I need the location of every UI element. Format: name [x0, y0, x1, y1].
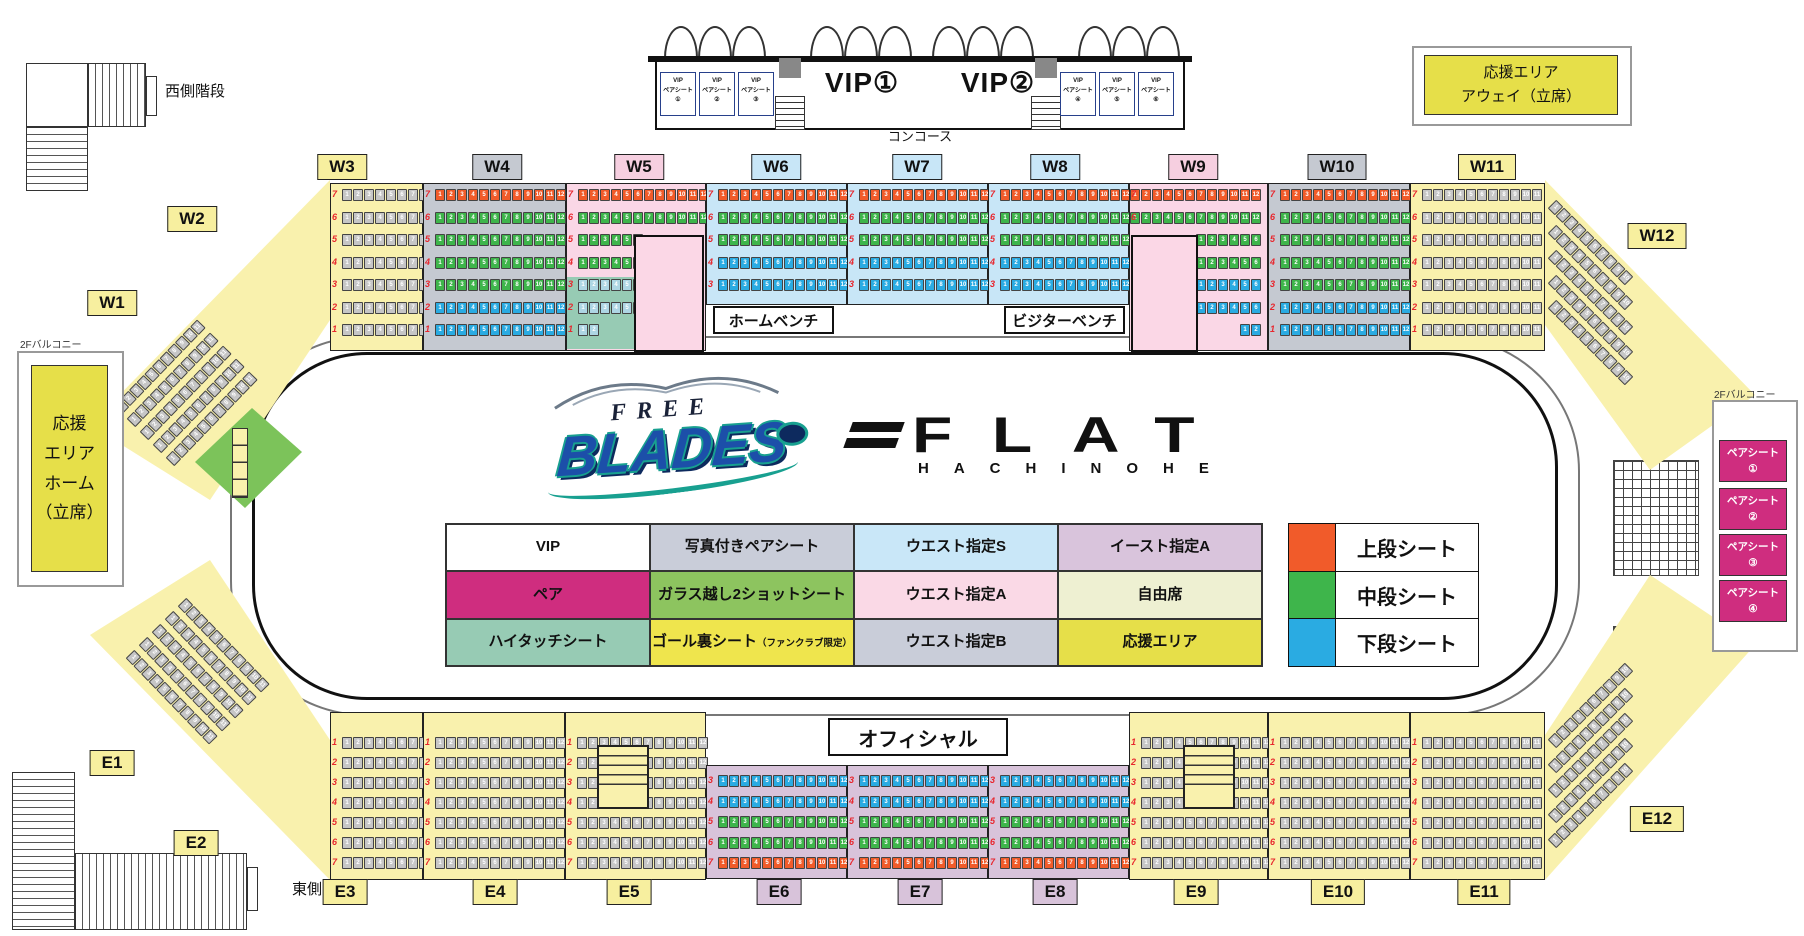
seat: 4	[1313, 212, 1323, 224]
section-W9[interactable]: 7123456789101112612345678910111251234564…	[1129, 183, 1268, 351]
row-number: 2	[1270, 302, 1275, 312]
west-stairs-steps-lower	[26, 127, 88, 191]
seat: 2	[870, 257, 880, 269]
seat: 6	[1335, 817, 1345, 829]
seat: 6	[914, 234, 924, 246]
seat: 9	[1088, 796, 1098, 808]
seat: 6	[1335, 777, 1345, 789]
seat: 6	[914, 837, 924, 849]
seat: 5	[1185, 837, 1195, 849]
seat: 5	[479, 737, 489, 749]
seat: 8	[1499, 189, 1509, 201]
seat: 5	[479, 279, 489, 291]
seat: 9	[1510, 257, 1520, 269]
seat: 1	[1422, 777, 1432, 789]
section-W5[interactable]: 7123456789101112612345678910111251234564…	[566, 183, 706, 351]
seat: 1	[1000, 212, 1010, 224]
section-badge-E3[interactable]: E3	[323, 879, 368, 905]
seat-row: 3123456789101112	[707, 279, 846, 291]
seat-row: 4123456789101112	[424, 257, 565, 269]
seat: 6	[914, 857, 924, 869]
seat: 11	[1390, 302, 1400, 314]
seat-row: 7123456789101112	[567, 189, 705, 201]
seat: 7	[408, 302, 418, 314]
seat: 1	[1000, 189, 1010, 201]
seat: 7	[408, 737, 418, 749]
seat: 9	[1088, 775, 1098, 787]
section-E4[interactable]: 1123456789101112212345678910111231234567…	[423, 712, 565, 880]
seat-row: 4123456789101112	[707, 257, 846, 269]
seat: 2	[729, 857, 739, 869]
seat: 9	[806, 775, 816, 787]
row-number: 4	[1412, 257, 1417, 267]
section-E11[interactable]: 1123456789101121234567891011312345678910…	[1410, 712, 1545, 880]
seat: 8	[936, 837, 946, 849]
seat: 11	[1110, 816, 1120, 828]
seat: 4	[1455, 234, 1465, 246]
section-badge-E4[interactable]: E4	[473, 879, 518, 905]
legend-cell-label: ゴール裏シート（ファンクラブ限定）	[652, 634, 852, 651]
vip-booth-label: VIP	[739, 77, 773, 87]
row-number: 2	[1131, 757, 1136, 767]
legend-cell-label: 応援エリア	[1122, 634, 1197, 651]
seat: 9	[1510, 797, 1520, 809]
seat: 9	[1368, 324, 1378, 336]
pair-seat-label: ペアシート	[1720, 540, 1786, 556]
seat: 9	[1368, 279, 1378, 291]
seat: 11	[828, 857, 838, 869]
seat: 3	[1302, 257, 1312, 269]
seat: 4	[1313, 737, 1323, 749]
seat: 9	[1368, 817, 1378, 829]
seat: 10	[534, 857, 544, 869]
seat: 5	[1324, 324, 1334, 336]
seat: 10	[817, 857, 827, 869]
seat: 1	[435, 279, 445, 291]
seat: 10	[1240, 817, 1250, 829]
row-number: 3	[1270, 777, 1275, 787]
section-badge-W12[interactable]: W12	[1628, 223, 1687, 249]
section-W10[interactable]: 7123456789101112612345678910111251234567…	[1268, 183, 1410, 351]
seat: 3	[364, 817, 374, 829]
away-standing-area[interactable]: 応援エリア アウェイ（立席）	[1424, 55, 1618, 115]
seat-row: 2123456789101112	[424, 757, 564, 769]
row-number: 5	[425, 234, 430, 244]
seat: 1	[1280, 737, 1290, 749]
tier-label: 下段シート	[1336, 619, 1478, 666]
seat: 7	[501, 757, 511, 769]
seat: 7	[784, 857, 794, 869]
seat: 9	[1510, 817, 1520, 829]
seat: 7	[1346, 257, 1356, 269]
balcony-pair-seat-4[interactable]: ペアシート④	[1719, 580, 1787, 622]
vip-pair-booth[interactable]: VIPペアシート⑤	[1099, 72, 1135, 116]
seat: 9	[523, 257, 533, 269]
seat: 2	[1291, 189, 1301, 201]
section-E10[interactable]: 1123456789101112212345678910111231234567…	[1268, 712, 1410, 880]
section-badge-W7[interactable]: W7	[892, 154, 942, 180]
section-badge-E10[interactable]: E10	[1311, 879, 1365, 905]
seat: 11	[687, 837, 697, 849]
section-badge-E7[interactable]: E7	[898, 879, 943, 905]
seat: 11	[545, 857, 555, 869]
vip-room-1[interactable]: VIP①	[792, 66, 932, 99]
seat: 9	[1218, 212, 1228, 224]
seat: 6	[773, 234, 783, 246]
seat: 3	[364, 212, 374, 224]
seat: 1	[1280, 757, 1290, 769]
seat: 9	[523, 757, 533, 769]
seat: 5	[1185, 817, 1195, 829]
seat: 5	[479, 212, 489, 224]
seat: 4	[610, 817, 620, 829]
seat: 6	[397, 797, 407, 809]
seat: 1	[1000, 279, 1010, 291]
section-W8[interactable]: 7123456789101112612345678910111251234567…	[988, 183, 1129, 305]
seat: 4	[1033, 857, 1043, 869]
seat: 2	[1011, 816, 1021, 828]
section-badge-W11[interactable]: W11	[1458, 154, 1516, 180]
row-number: 4	[990, 796, 995, 806]
seat-row: 51234567891011	[1411, 817, 1544, 829]
seat: 7	[1488, 797, 1498, 809]
seat: 4	[375, 257, 385, 269]
seat: 5	[762, 257, 772, 269]
vip-booth-label: ⑥	[1139, 96, 1173, 106]
seat: 4	[892, 257, 902, 269]
tier-legend-row: 中段シート	[1289, 572, 1478, 620]
seat: 11	[1251, 777, 1261, 789]
seat: 2	[1152, 797, 1162, 809]
seat: 10	[677, 212, 687, 224]
seat: 8	[1499, 797, 1509, 809]
seat: 3	[457, 279, 467, 291]
section-badge-W3[interactable]: W3	[317, 154, 367, 180]
seat: 10	[1379, 757, 1389, 769]
seat: 6	[914, 775, 924, 787]
seat: 7	[1066, 816, 1076, 828]
seat: 10	[817, 212, 827, 224]
seat: 11	[1390, 189, 1400, 201]
seat: 5	[386, 837, 396, 849]
section-badge-E8[interactable]: E8	[1033, 879, 1078, 905]
seat: 1	[718, 257, 728, 269]
balcony-pair-seat-1[interactable]: ペアシート①	[1719, 440, 1787, 482]
seat: 6	[1055, 857, 1065, 869]
section-badge-E11[interactable]: E11	[1457, 879, 1510, 905]
seat-row: 7123456789101112	[989, 189, 1128, 201]
seat: 4	[892, 837, 902, 849]
seat: 4	[375, 234, 385, 246]
seat: 2	[870, 279, 880, 291]
seat: 11	[969, 257, 979, 269]
seat: 5	[1466, 234, 1476, 246]
section-badge-E1[interactable]: E1	[90, 750, 135, 776]
seat-row: 712345678	[331, 857, 422, 869]
seat: 11	[969, 212, 979, 224]
vip-pillar-block	[779, 58, 801, 78]
row-number: 3	[1412, 279, 1417, 289]
seat: 7	[925, 837, 935, 849]
seat: 6	[1335, 279, 1345, 291]
legend-cell: イースト指定A	[1058, 524, 1262, 571]
vip-pair-booth[interactable]: VIPペアシート②	[699, 72, 735, 116]
seat: 3	[1163, 837, 1173, 849]
seat: 2	[870, 816, 880, 828]
seat: 8	[512, 189, 522, 201]
seat: 10	[1521, 837, 1531, 849]
seat-row: 4123456789101112	[848, 257, 987, 269]
seat: 3	[457, 817, 467, 829]
seat: 9	[665, 777, 675, 789]
seat-row: 3123456789101112	[707, 775, 846, 787]
seat: 10	[534, 279, 544, 291]
seat: 5	[622, 257, 632, 269]
seat: 6	[1251, 302, 1261, 314]
seat-row: 512345678	[331, 234, 422, 246]
seat-row: 1123456789101112	[424, 324, 565, 336]
section-badge-W8[interactable]: W8	[1030, 154, 1080, 180]
legend-cell: ウエスト指定S	[854, 524, 1058, 571]
seat-row: 21234567891011	[1411, 757, 1544, 769]
seat-row: 5123456789101112	[566, 817, 705, 829]
seat: 4	[892, 279, 902, 291]
east-stairs-steps-left	[12, 772, 75, 930]
seat-row: 3123456789101112	[848, 775, 987, 787]
seat: 3	[457, 837, 467, 849]
seat: 2	[353, 212, 363, 224]
seat: 11	[828, 837, 838, 849]
seat: 8	[936, 796, 946, 808]
seat: 10	[1521, 257, 1531, 269]
seat: 7	[643, 857, 653, 869]
seat-row: 4123456789101112	[989, 796, 1128, 808]
seat: 8	[1077, 212, 1087, 224]
row-number: 6	[1131, 837, 1136, 847]
seat: 2	[1433, 737, 1443, 749]
seat: 2	[446, 737, 456, 749]
legend-cell-label: ペア	[533, 587, 563, 604]
section-badge-E9[interactable]: E9	[1174, 879, 1219, 905]
seat: 5	[622, 234, 632, 246]
seat: 6	[1335, 837, 1345, 849]
seat: 10	[676, 837, 686, 849]
seat: 10	[1379, 797, 1389, 809]
seat: 6	[1335, 857, 1345, 869]
seat: 2	[1011, 257, 1021, 269]
seat: 1	[577, 757, 587, 769]
seat: 1	[342, 817, 352, 829]
seat: 3	[1444, 857, 1454, 869]
seat: 4	[1455, 279, 1465, 291]
away-standing-line1: 応援エリア	[1483, 61, 1558, 85]
seat: 6	[914, 279, 924, 291]
seat: 9	[665, 737, 675, 749]
seat: 6	[1055, 257, 1065, 269]
seat: 5	[1466, 189, 1476, 201]
seat: 2	[589, 212, 599, 224]
seat: 3	[1022, 816, 1032, 828]
section-badge-W9[interactable]: W9	[1168, 154, 1218, 180]
section-E6[interactable]: 3123456789101112412345678910111251234567…	[706, 765, 847, 879]
section-W6[interactable]: 7123456789101112612345678910111251234567…	[706, 183, 847, 305]
legend-cell: 応援エリア	[1058, 619, 1262, 666]
seat: 10	[1099, 857, 1109, 869]
seat: 7	[1488, 257, 1498, 269]
seat: 11	[828, 816, 838, 828]
seat: 1	[1422, 189, 1432, 201]
seat: 9	[806, 212, 816, 224]
balcony-pair-seat-3[interactable]: ペアシート③	[1719, 534, 1787, 576]
seat: 4	[468, 212, 478, 224]
balcony-pair-seat-2[interactable]: ペアシート②	[1719, 488, 1787, 530]
arch-window-icon	[664, 26, 698, 58]
section-E7[interactable]: 3123456789101112412345678910111251234567…	[847, 765, 988, 879]
seat: 7	[784, 212, 794, 224]
seat: 2	[1291, 257, 1301, 269]
seat: 8	[795, 234, 805, 246]
seat: 8	[795, 257, 805, 269]
section-badge-E12[interactable]: E12	[1630, 806, 1684, 832]
seat: 11	[1532, 212, 1542, 224]
seat: 1	[859, 775, 869, 787]
seat: 3	[1218, 279, 1228, 291]
seat: 8	[1357, 324, 1367, 336]
seat: 6	[1251, 234, 1261, 246]
section-W11[interactable]: 7123456789101161234567891011512345678910…	[1410, 183, 1545, 351]
section-badge-E6[interactable]: E6	[757, 879, 802, 905]
seat: 8	[512, 857, 522, 869]
seat: 6	[397, 817, 407, 829]
seat: 3	[1302, 212, 1312, 224]
seat: 3	[1022, 212, 1032, 224]
home-standing-area[interactable]: 応援 エリア ホーム （立席）	[31, 365, 108, 572]
seat: 9	[1510, 757, 1520, 769]
seat: 5	[386, 302, 396, 314]
seat: 11	[1390, 234, 1400, 246]
seat: 3	[1302, 737, 1312, 749]
section-W3[interactable]: 7123456786123456785123456784123456783123…	[330, 183, 423, 351]
seat: 8	[936, 234, 946, 246]
seat: 6	[773, 837, 783, 849]
section-badge-W10[interactable]: W10	[1308, 154, 1367, 180]
seat: 3	[600, 212, 610, 224]
visitor-bench: ビジターベンチ	[1004, 306, 1125, 334]
seat: 7	[644, 212, 654, 224]
seat: 4	[611, 234, 621, 246]
seat: 4	[468, 857, 478, 869]
seat: 6	[397, 302, 407, 314]
arch-window-icon	[932, 26, 966, 58]
vip-pair-booth[interactable]: VIPペアシート③	[738, 72, 774, 116]
seat: 5	[479, 302, 489, 314]
row-number: 6	[708, 212, 713, 222]
vip-booth-label: ペアシート	[700, 87, 734, 97]
vip-booth-label: ①	[661, 96, 695, 106]
seat: 1	[342, 212, 352, 224]
seat-row: 6123456789101112	[1269, 837, 1409, 849]
seat: 9	[1510, 777, 1520, 789]
seat: 5	[1324, 797, 1334, 809]
section-badge-E2[interactable]: E2	[174, 830, 219, 856]
seat: 2	[1011, 857, 1021, 869]
seat: 8	[1499, 837, 1509, 849]
seat-row: 3123456789101112	[424, 777, 564, 789]
section-badge-W2[interactable]: W2	[167, 206, 217, 232]
seat: 6	[1477, 857, 1487, 869]
vip-pair-booth[interactable]: VIPペアシート⑥	[1138, 72, 1174, 116]
seat: 1	[859, 796, 869, 808]
section-badge-E5[interactable]: E5	[607, 879, 652, 905]
seat-row: 5123456789101112	[1269, 234, 1409, 246]
seat: 2	[1433, 837, 1443, 849]
section-W4[interactable]: 7123456789101112612345678910111251234567…	[423, 183, 566, 351]
section-badge-W6[interactable]: W6	[751, 154, 801, 180]
seat: 2	[1291, 234, 1301, 246]
stairwell	[1183, 745, 1235, 809]
seat: 3	[1022, 837, 1032, 849]
vip-pair-booths-right: VIPペアシート④VIPペアシート⑤VIPペアシート⑥	[1060, 72, 1174, 116]
seat: 3	[364, 757, 374, 769]
seat: 2	[1433, 212, 1443, 224]
seat: 6	[397, 324, 407, 336]
legend-cell-sublabel: （ファンクラブ限定）	[757, 638, 852, 649]
seat: 6	[1477, 817, 1487, 829]
section-E3[interactable]: 1123456782123456783123456784123456785123…	[330, 712, 423, 880]
seat-row: 4123456789101112	[848, 796, 987, 808]
seat: 11	[687, 797, 697, 809]
vip-booth-label: ペアシート	[1100, 87, 1134, 97]
seat: 10	[1379, 324, 1389, 336]
seat-row: 4123456789101112	[989, 257, 1128, 269]
seat: 1	[859, 279, 869, 291]
seat: 1	[578, 279, 588, 291]
seat: 8	[1357, 817, 1367, 829]
seat-row: 41234567891011	[1411, 257, 1544, 269]
seat: 6	[914, 257, 924, 269]
seat-row: 6123456789101112	[567, 212, 705, 224]
seat: 11	[688, 212, 698, 224]
seat: 7	[1488, 234, 1498, 246]
section-badge-W1[interactable]: W1	[87, 290, 137, 316]
seat: 7	[408, 234, 418, 246]
seat: 1	[342, 777, 352, 789]
seat: 7	[1488, 212, 1498, 224]
section-E8[interactable]: 3123456789101112412345678910111251234567…	[988, 765, 1129, 879]
seat: 8	[1499, 257, 1509, 269]
seat: 10	[1099, 775, 1109, 787]
seat: 5	[1466, 737, 1476, 749]
vip-pair-booth[interactable]: VIPペアシート①	[660, 72, 696, 116]
seat: 11	[969, 837, 979, 849]
seat: 10	[1521, 302, 1531, 314]
section-badge-W5[interactable]: W5	[614, 154, 664, 180]
row-number: 4	[568, 257, 573, 267]
seat: 3	[599, 817, 609, 829]
section-badge-W4[interactable]: W4	[472, 154, 522, 180]
seat: 9	[1088, 816, 1098, 828]
seat: 6	[632, 857, 642, 869]
seat: 11	[828, 189, 838, 201]
seat: 3	[881, 234, 891, 246]
seat: 11	[545, 777, 555, 789]
tier-label: 中段シート	[1336, 572, 1478, 619]
seat: 2	[729, 279, 739, 291]
seat: 1	[1422, 857, 1432, 869]
section-W7[interactable]: 7123456789101112612345678910111251234567…	[847, 183, 988, 305]
seat: 3	[1163, 797, 1173, 809]
seat: 1	[859, 257, 869, 269]
